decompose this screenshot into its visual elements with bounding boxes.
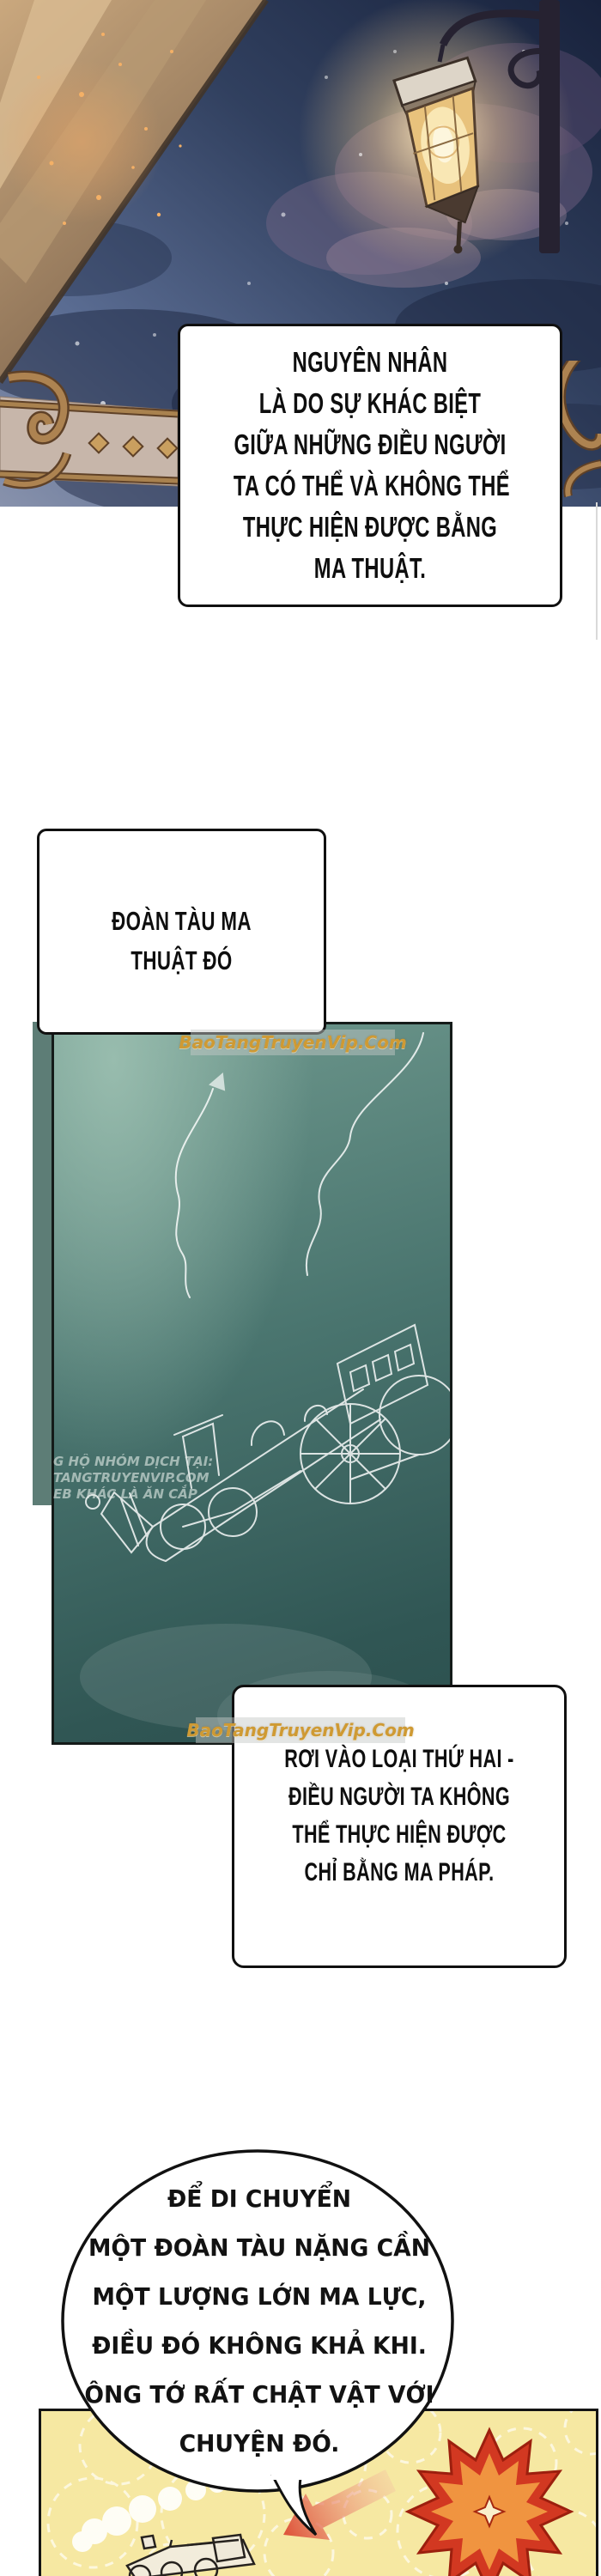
speech-line: THUẬT ĐÓ [79, 941, 283, 981]
speech-bubble-1: NGUYÊN NHÂN LÀ DO SỰ KHÁC BIỆT GIỮA NHỮN… [178, 324, 562, 607]
speech-line: LÀ DO SỰ KHÁC BIỆT [234, 383, 507, 424]
watermark-strip-bottom: BaoTangTruyenVip.Com [196, 1717, 405, 1743]
translator-note-line: TANGTRUYENVIP.COM [53, 1470, 234, 1486]
translator-note-line: EB KHÁC LÀ ĂN CẮP [53, 1486, 234, 1503]
comic-page: NGUYÊN NHÂN LÀ DO SỰ KHÁC BIỆT GIỮA NHỮN… [0, 0, 601, 2576]
watermark-strip-top: BaoTangTruyenVip.Com [191, 1030, 395, 1055]
speech-line: ÔNG TỚ RẤT CHẬT VẬT VỚI [74, 2370, 444, 2419]
watermark-site-bottom: BaoTangTruyenVip.Com [186, 1720, 414, 1741]
speech-line: RƠI VÀO LOẠI THỨ HAI - [281, 1741, 518, 1778]
speech-bubble-2: ĐOÀN TÀU MA THUẬT ĐÓ [37, 829, 326, 1035]
translator-note-line: G HỘ NHÓM DỊCH TẠI: [53, 1454, 234, 1470]
speech-line: GIỮA NHỮNG ĐIỀU NGƯỜI [234, 424, 507, 465]
speech-line: MỘT LƯỢNG LỚN MA LỰC, [74, 2272, 444, 2321]
balloon-4-text: ĐỂ DI CHUYỂN MỘT ĐOÀN TÀU NẶNG CẦN MỘT L… [74, 2174, 444, 2468]
speech-line: ĐOÀN TÀU MA [79, 902, 283, 941]
speech-line: MA THUẬT. [234, 548, 507, 589]
magic-train-panel [52, 1022, 452, 1745]
train-sketch [54, 1024, 450, 1742]
speech-line: ĐIỀU ĐÓ KHÔNG KHẢ KHI. [74, 2321, 444, 2370]
speech-line: THỰC HIỆN ĐƯỢC BẰNG [234, 507, 507, 548]
page-edge-line [596, 502, 598, 640]
speech-line: TA CÓ THỂ VÀ KHÔNG THỂ [234, 465, 507, 507]
speech-line: CHUYỆN ĐÓ. [74, 2419, 444, 2468]
speech-line: ĐỂ DI CHUYỂN [74, 2174, 444, 2223]
speech-line: THỂ THỰC HIỆN ĐƯỢC [281, 1816, 518, 1854]
speech-line: CHỈ BẰNG MA PHÁP. [281, 1854, 518, 1892]
translator-note-watermark: G HỘ NHÓM DỊCH TẠI: TANGTRUYENVIP.COM EB… [53, 1454, 234, 1503]
watermark-site-top: BaoTangTruyenVip.Com [179, 1032, 406, 1053]
right-scrollwork [560, 361, 601, 496]
panel-shadow-strip [33, 1022, 52, 1505]
speech-line: ĐIỀU NGƯỜI TA KHÔNG [281, 1778, 518, 1816]
speech-line: MỘT ĐOÀN TÀU NẶNG CẦN [74, 2223, 444, 2272]
speech-line: NGUYÊN NHÂN [234, 342, 507, 383]
